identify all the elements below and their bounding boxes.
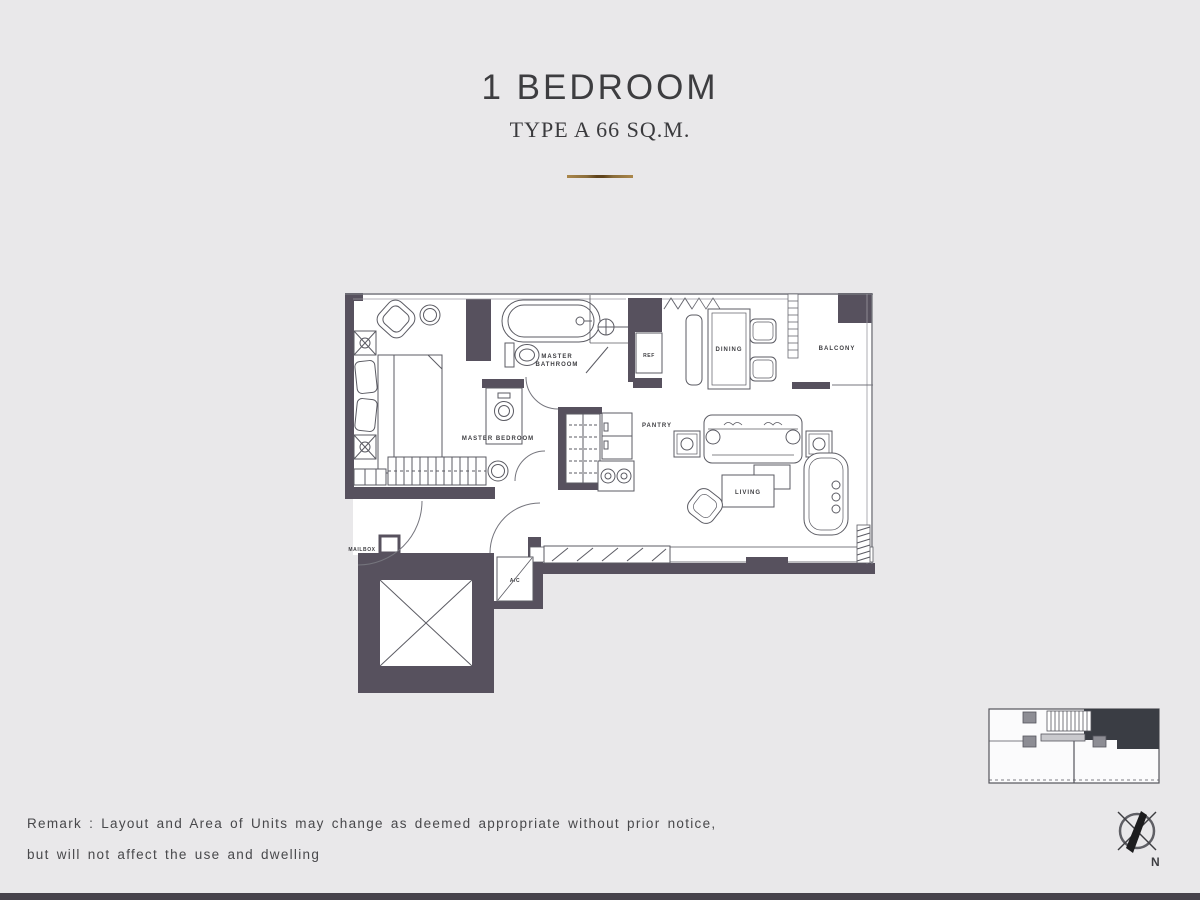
- nightstand-bottom: [354, 435, 376, 459]
- label-ac: A/C: [510, 578, 520, 584]
- dining-chair-2: [750, 357, 776, 381]
- balcony-sliding-door: [788, 294, 798, 358]
- bottom-edge-strip: [0, 893, 1200, 900]
- label-master-bathroom-2: BATHROOM: [536, 362, 579, 368]
- label-dining: DINING: [716, 347, 743, 353]
- round-side-table: [420, 305, 440, 325]
- toilet: [505, 343, 539, 367]
- stove: [598, 461, 634, 491]
- page-title: 1 BEDROOM: [0, 68, 1200, 108]
- compass-icon: [1118, 811, 1156, 853]
- sink-cabinet: [602, 413, 632, 459]
- label-mailbox: MAILBOX: [348, 547, 375, 553]
- unit-type-subtitle: TYPE A 66 SQ.M.: [0, 117, 1200, 143]
- dresser: [354, 469, 386, 485]
- label-pantry: PANTRY: [642, 423, 672, 429]
- lift-shaft: [358, 553, 494, 693]
- chaise-lounge: [804, 453, 848, 535]
- label-master-bathroom-1: MASTER: [541, 354, 572, 360]
- bathtub: [502, 300, 600, 342]
- gold-divider: [567, 175, 633, 178]
- stool: [488, 461, 508, 481]
- wardrobe: [388, 457, 486, 485]
- sofa: [704, 415, 802, 463]
- nightstand-top: [354, 331, 376, 355]
- label-living: LIVING: [735, 490, 761, 496]
- dining-bench: [686, 315, 702, 385]
- header: 1 BEDROOM TYPE A 66 SQ.M.: [0, 68, 1200, 178]
- remark-line-2: but will not affect the use and dwelling: [27, 839, 787, 870]
- side-table-left: [674, 431, 700, 457]
- linen-closet: [566, 414, 600, 483]
- compass: N: [1105, 800, 1175, 880]
- compass-north-label: N: [1151, 855, 1160, 869]
- remark-line-1: Remark : Layout and Area of Units may ch…: [27, 808, 787, 839]
- dining-chair-1: [750, 319, 776, 343]
- key-plan: [985, 695, 1170, 795]
- right-hatch-column: [857, 525, 870, 563]
- label-balcony: BALCONY: [819, 346, 856, 352]
- mailbox-box: [380, 536, 399, 553]
- floor-plan: MASTER BATHROOM MASTER BEDROOM REF DININ…: [340, 285, 890, 700]
- remark: Remark : Layout and Area of Units may ch…: [27, 808, 787, 870]
- label-ref: REF: [643, 353, 655, 359]
- label-master-bedroom: MASTER BEDROOM: [462, 436, 534, 442]
